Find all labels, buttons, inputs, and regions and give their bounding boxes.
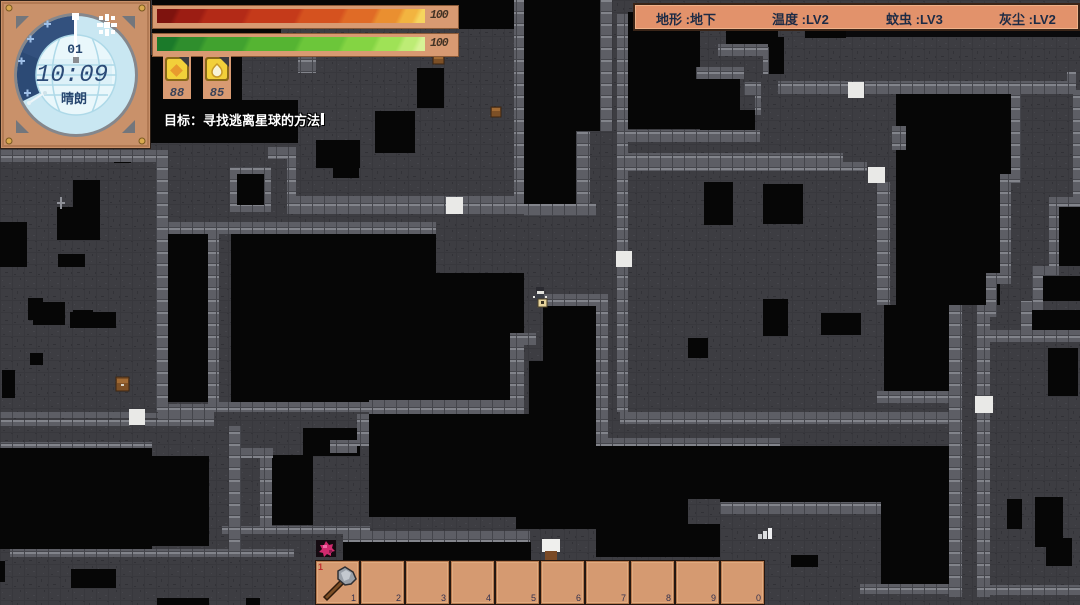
svg-text:01: 01: [67, 42, 83, 57]
svg-text:88: 88: [170, 86, 184, 99]
svg-text:85: 85: [210, 86, 225, 99]
svg-text:10:09: 10:09: [36, 62, 108, 89]
svg-text:晴朗: 晴朗: [61, 91, 87, 106]
